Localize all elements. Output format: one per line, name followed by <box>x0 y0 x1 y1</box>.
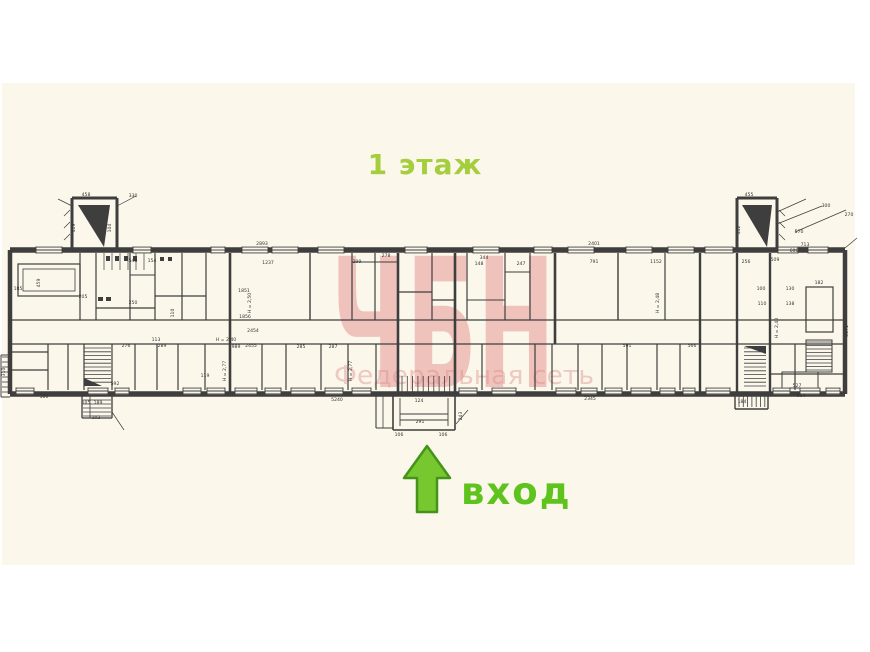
dimension-label: 106 <box>395 432 404 438</box>
stair-triangle <box>742 205 772 247</box>
dimension-label: 791 <box>590 259 599 265</box>
dimension-label: 459 <box>36 279 42 288</box>
dimension-label: 5240 <box>331 397 343 403</box>
dimension-label: 310 <box>1 368 7 377</box>
hatch-tick <box>64 222 70 228</box>
dimension-label: 287 <box>329 344 338 350</box>
dimension-label: 2455 <box>245 343 257 349</box>
dimension-label: 100 <box>757 286 766 292</box>
dimension-label: 548 <box>129 258 138 264</box>
dimension-label: 104 <box>107 224 113 233</box>
dimension-label: 256 <box>742 259 751 265</box>
dimension-label: H = 2,77 <box>222 361 228 382</box>
dimension-label: 205 <box>79 294 88 300</box>
fixture <box>168 257 172 261</box>
wall <box>58 199 72 206</box>
dimension-label: 278 <box>382 253 391 259</box>
dimension-label: 154 <box>148 258 157 264</box>
dimension-label: 300 <box>822 203 831 209</box>
dimension-label: 419 <box>71 224 77 233</box>
dimension-label: 130 <box>786 286 795 292</box>
dimension-label: 110 <box>170 309 176 318</box>
hatch-tick <box>64 234 70 240</box>
storage-room-inner <box>23 269 75 291</box>
dimension-label: 119 <box>201 373 210 379</box>
hatch-tick <box>779 222 785 228</box>
fixture <box>124 256 128 261</box>
hatch-tick <box>64 210 70 216</box>
dimension-label: 102 <box>92 415 101 421</box>
dimension-label: 250 <box>129 300 138 306</box>
dimension-label: 989 <box>232 344 241 350</box>
dimension-label: 247 <box>517 261 526 267</box>
dimension-label: 527 <box>793 383 802 389</box>
dimension-label: 713 <box>801 242 810 248</box>
dimension-label: 185 <box>14 286 23 292</box>
dimension-label: 113 <box>152 337 161 343</box>
entrance-arrow <box>404 446 450 512</box>
dimension-label: 106 <box>439 432 448 438</box>
dimension-label: 291 <box>416 419 425 425</box>
dimension-label: H = 2,40 <box>216 337 237 343</box>
dimension-label: 1856 <box>239 314 251 320</box>
dimension-label: 442 <box>736 226 742 235</box>
fixture <box>98 297 103 301</box>
wall <box>777 199 806 212</box>
dimension-label: 344 <box>480 255 489 261</box>
dimension-label: 243 <box>458 412 464 421</box>
dimension-label: 2454 <box>247 328 259 334</box>
fixture <box>106 297 111 301</box>
watermark-subtitle: Федеральная сеть <box>334 361 594 391</box>
dimension-label: 276 <box>122 343 131 349</box>
dimension-label: 1237 <box>262 260 274 266</box>
dimension-label: H = 2,48 <box>655 293 661 314</box>
wall <box>795 210 846 232</box>
entrance-label: вход <box>461 470 572 513</box>
dimension-label: 2893 <box>256 241 268 247</box>
dimension-label: H = 2,50 <box>247 293 253 314</box>
dimension-label: 5671 <box>844 325 850 337</box>
fixture <box>106 256 110 261</box>
screenshot-root: 1 этаж ЧБН Федеральная сеть 289324014584… <box>0 0 870 652</box>
stair-triangle <box>78 205 110 247</box>
floor-plan: ЧБН Федеральная сеть 2893240145841910433… <box>0 0 870 652</box>
dimension-label: 182 <box>815 280 824 286</box>
stair-wedge <box>744 346 766 354</box>
dimension-label: 285 <box>297 344 306 350</box>
dimension-label: 1152 <box>650 259 662 265</box>
wall <box>112 412 124 430</box>
fixture <box>115 256 119 261</box>
dimension-label: 2401 <box>588 241 600 247</box>
fixture <box>160 257 164 261</box>
dimension-label: H = 2,40 <box>774 318 780 339</box>
dimension-label: H = 2,77 <box>348 361 354 382</box>
dimension-label: 570 <box>795 229 804 235</box>
dimension-label: 189 <box>94 400 103 406</box>
dimension-label: 592 <box>111 381 120 387</box>
dimension-label: 566 <box>688 343 697 349</box>
dimension-label: 105 <box>82 400 91 406</box>
dimension-label: 608 <box>790 248 799 254</box>
dimension-label: 148 <box>475 261 484 267</box>
dimension-label: 455 <box>745 192 754 198</box>
inner-room <box>806 287 833 332</box>
dimension-label: 330 <box>129 193 138 199</box>
dimension-label: 580 <box>40 394 49 400</box>
dimension-label: 509 <box>771 257 780 263</box>
dimension-label: 2345 <box>584 396 596 402</box>
dimension-label: 124 <box>415 398 424 404</box>
dimension-label: 299 <box>353 259 362 265</box>
dimension-label: 604 <box>797 393 806 399</box>
dimension-label: 138 <box>786 301 795 307</box>
dimension-label: 110 <box>758 301 767 307</box>
dimension-label: 591 <box>623 343 632 349</box>
hatch-tick <box>779 234 785 240</box>
dimension-label: 270 <box>845 212 854 218</box>
hatch-tick <box>779 210 785 216</box>
dimension-label: 184 <box>738 399 747 405</box>
dimension-label: 458 <box>82 192 91 198</box>
dimension-label: 289 <box>158 343 167 349</box>
wall <box>845 238 857 248</box>
